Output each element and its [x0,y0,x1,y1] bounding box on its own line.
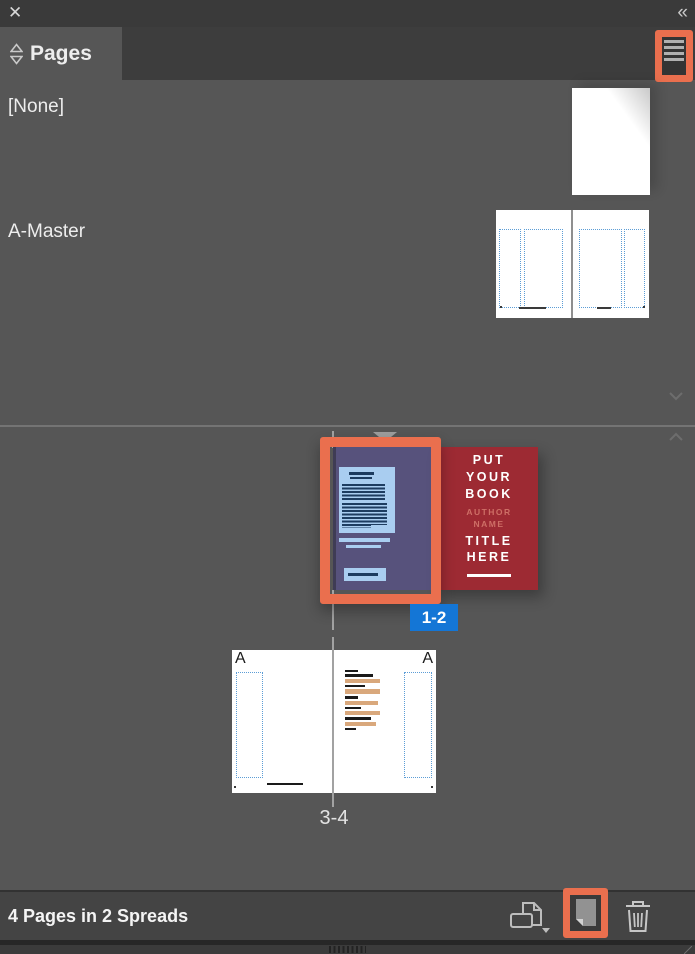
spread-spine [332,637,334,807]
cover-text: PUT [440,453,538,467]
section-divider[interactable] [0,425,695,427]
cover-text: YOUR [440,470,538,484]
margin-guide [579,229,622,308]
tab-bar: Pages [0,27,695,80]
cover-author-text: NAME [440,519,538,529]
spread-3-4-label[interactable]: 3-4 [294,807,374,830]
annotation-create-new-page [563,888,608,938]
create-new-page-icon[interactable] [572,895,599,929]
cover-rule [467,574,511,577]
pages-scroll-up-icon[interactable] [668,432,684,442]
resize-corner[interactable] [684,946,692,954]
panel-cycle-icon [10,43,23,65]
page-2-thumbnail[interactable]: PUT YOUR BOOK AUTHOR NAME TITLE HERE [436,447,538,590]
margin-guide [499,229,521,308]
folio-placeholder [597,307,611,309]
master-prefix-badge: A [422,650,433,668]
page-4-thumbnail[interactable]: A [334,650,436,793]
master-none-thumbnail[interactable] [572,88,650,195]
collapse-panel-icon[interactable]: « [677,2,688,24]
folio-placeholder [519,307,546,309]
corner-mark [500,306,502,308]
master-a-thumbnail[interactable] [496,210,649,318]
annotation-panel-menu [655,30,693,82]
panel-title-bar: ✕ « [0,0,695,27]
margin-guide [624,229,645,308]
text-line [267,783,303,785]
corner-mark [234,786,236,788]
tab-pages-label: Pages [30,42,92,66]
annotation-page-1 [320,437,441,604]
pages-panel: ✕ « Pages [None] A-Master [0,0,695,954]
master-prefix-badge: A [235,650,246,668]
spread-1-2-label[interactable]: 1-2 [410,604,458,631]
corner-mark [431,786,433,788]
close-icon[interactable]: ✕ [8,3,22,23]
page-4-text-block [345,670,380,732]
master-a-label[interactable]: A-Master [8,221,85,243]
delete-page-icon[interactable] [622,898,654,934]
cover-author-text: AUTHOR [440,507,538,517]
margin-guide [404,672,432,778]
panel-menu-icon[interactable] [664,40,684,61]
master-none-label[interactable]: [None] [8,96,64,118]
panel-bottom-strip [0,945,695,954]
cover-title-text: HERE [440,550,538,564]
page-count-status: 4 Pages in 2 Spreads [8,892,188,940]
edit-page-size-icon[interactable] [507,899,551,935]
cover-text: BOOK [440,487,538,501]
tab-pages[interactable]: Pages [0,27,122,80]
corner-mark [643,306,645,308]
master-spread-spine [571,210,573,318]
margin-guide [524,229,563,308]
page-3-thumbnail[interactable]: A [232,650,334,793]
cover-title-text: TITLE [440,534,538,548]
panel-resize-grip[interactable] [329,946,366,953]
masters-scroll-down-icon[interactable] [668,391,684,401]
margin-guide [236,672,263,778]
